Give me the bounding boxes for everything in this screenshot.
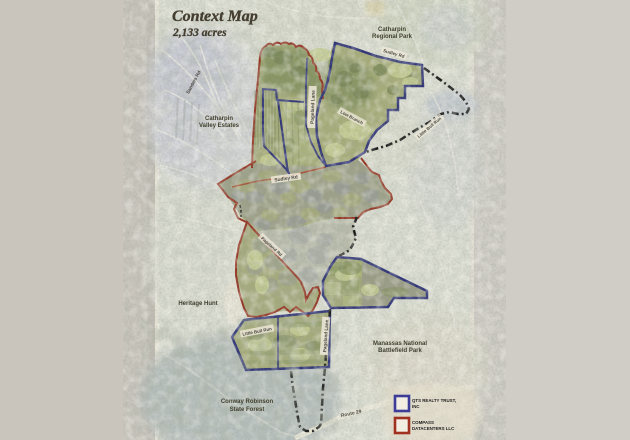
svg-text:Pageland Lane: Pageland Lane (310, 90, 317, 124)
svg-text:Catharpin: Catharpin (205, 116, 233, 122)
svg-text:INC: INC (412, 404, 420, 409)
svg-text:Battlefield Park: Battlefield Park (378, 348, 422, 354)
svg-text:Heritage Hunt: Heritage Hunt (178, 301, 217, 307)
svg-text:Regional Park: Regional Park (372, 34, 413, 40)
svg-text:QTS REALTY TRUST,: QTS REALTY TRUST, (412, 398, 456, 403)
svg-text:Manassas National: Manassas National (373, 341, 427, 347)
svg-text:COMPASS: COMPASS (412, 420, 434, 425)
svg-text:Conway Robinson: Conway Robinson (221, 399, 274, 405)
svg-text:Catharpin: Catharpin (378, 27, 406, 33)
svg-text:Valley Estates: Valley Estates (199, 123, 240, 129)
svg-text:Context Map: Context Map (172, 8, 258, 25)
svg-text:2,133 acres: 2,133 acres (172, 27, 227, 39)
svg-text:DATACENTERS LLC: DATACENTERS LLC (412, 426, 455, 431)
svg-text:State Forest: State Forest (230, 407, 265, 413)
